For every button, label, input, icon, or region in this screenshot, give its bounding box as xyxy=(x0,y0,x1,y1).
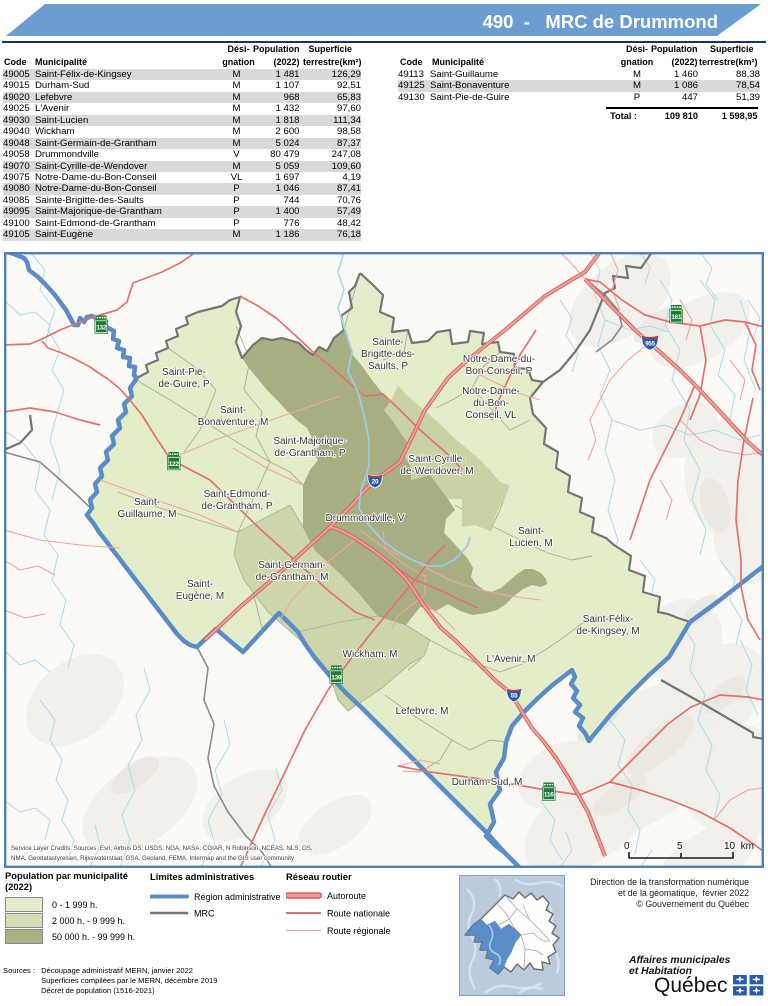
svg-text:Saint-: Saint- xyxy=(134,497,160,508)
svg-text:de-Kingsey, M: de-Kingsey, M xyxy=(576,626,639,637)
svg-text:Lefebvre, M: Lefebvre, M xyxy=(396,706,449,717)
svg-text:Sainte-: Sainte- xyxy=(372,337,404,348)
svg-text:Route nationale: Route nationale xyxy=(327,909,390,919)
svg-text:Saint-: Saint- xyxy=(220,405,246,416)
svg-text:Wickham, M: Wickham, M xyxy=(343,649,398,660)
svg-text:Saint-Majorique-: Saint-Majorique- xyxy=(273,436,346,447)
svg-text:0: 0 xyxy=(624,841,630,852)
svg-text:Saint-Pie-: Saint-Pie- xyxy=(162,367,206,378)
svg-text:55: 55 xyxy=(511,693,518,700)
svg-text:132: 132 xyxy=(96,324,107,331)
svg-text:20: 20 xyxy=(372,479,379,486)
svg-text:de-Guire, P: de-Guire, P xyxy=(158,379,209,390)
svg-text:Bon-Conseil, P: Bon-Conseil, P xyxy=(466,366,533,377)
svg-text:Service Layer Credits: Sources: Service Layer Credits: Sources: Esri, Ai… xyxy=(11,845,313,852)
svg-text:139: 139 xyxy=(331,674,342,681)
svg-text:Saint-: Saint- xyxy=(518,526,544,537)
svg-text:Guillaume, M: Guillaume, M xyxy=(118,509,177,520)
svg-text:de-Grantham, P: de-Grantham, P xyxy=(201,501,272,512)
svg-text:NMA, Geodatastyrelsen, Rijkswa: NMA, Geodatastyrelsen, Rijkswaterstaat, … xyxy=(11,855,295,862)
svg-text:Autoroute: Autoroute xyxy=(327,891,366,901)
svg-text:122: 122 xyxy=(169,461,180,468)
svg-text:Saint-Cyrille-: Saint-Cyrille- xyxy=(408,454,465,465)
svg-text:L'Avenir, M: L'Avenir, M xyxy=(487,654,536,665)
svg-text:de-Grantham, P: de-Grantham, P xyxy=(274,448,345,459)
svg-text:Durham-Sud, M: Durham-Sud, M xyxy=(452,777,523,788)
svg-text:490 - MRC de Drummond: 490 - MRC de Drummond xyxy=(483,11,718,32)
svg-text:116: 116 xyxy=(544,791,554,798)
svg-text:Bonaventure, M: Bonaventure, M xyxy=(198,417,269,428)
svg-text:Notre-Dame-: Notre-Dame- xyxy=(462,386,520,397)
svg-text:5: 5 xyxy=(677,841,683,852)
svg-text:161: 161 xyxy=(671,314,682,321)
svg-text:Eugène, M: Eugène, M xyxy=(176,591,224,602)
svg-text:Saint-: Saint- xyxy=(187,579,213,590)
svg-text:Saint-Félix-: Saint-Félix- xyxy=(583,614,634,625)
svg-text:Drummondville, V: Drummondville, V xyxy=(326,513,405,524)
svg-text:de-Grantham, M: de-Grantham, M xyxy=(256,572,329,583)
svg-text:Notre-Dame-du-: Notre-Dame-du- xyxy=(463,354,535,365)
svg-text:de-Wendover, M: de-Wendover, M xyxy=(400,466,473,477)
svg-text:Brigitte-des-: Brigitte-des- xyxy=(361,349,415,360)
svg-text:Région administrative: Région administrative xyxy=(194,892,281,902)
svg-text:Route régionale: Route régionale xyxy=(327,926,391,936)
svg-text:MRC: MRC xyxy=(194,909,215,919)
svg-text:Saint-Germain-: Saint-Germain- xyxy=(258,560,326,571)
svg-text:Saint-Edmond-: Saint-Edmond- xyxy=(204,489,271,500)
svg-text:955: 955 xyxy=(645,341,655,348)
svg-text:Lucien, M: Lucien, M xyxy=(509,538,552,549)
svg-text:Conseil, VL: Conseil, VL xyxy=(465,410,517,421)
svg-text:Saults, P: Saults, P xyxy=(368,361,408,372)
svg-text:10 km: 10 km xyxy=(724,841,754,852)
svg-text:du-Bon-: du-Bon- xyxy=(473,398,509,409)
